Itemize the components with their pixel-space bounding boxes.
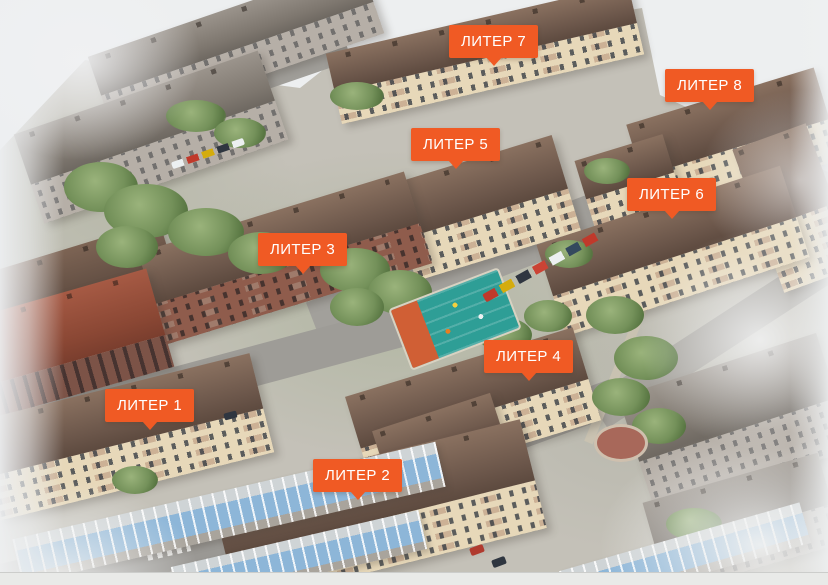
tree — [96, 226, 158, 268]
marker-liter-6[interactable]: ЛИТЕР 6 — [627, 178, 716, 211]
round-plaza — [594, 424, 648, 462]
marker-liter-8[interactable]: ЛИТЕР 8 — [665, 69, 754, 102]
marker-liter-1[interactable]: ЛИТЕР 1 — [105, 389, 194, 422]
marker-liter-4[interactable]: ЛИТЕР 4 — [484, 340, 573, 373]
tree — [112, 466, 158, 494]
tree — [584, 158, 630, 184]
marker-liter-3[interactable]: ЛИТЕР 3 — [258, 233, 347, 266]
tree — [330, 82, 384, 110]
marker-liter-5[interactable]: ЛИТЕР 5 — [411, 128, 500, 161]
tree — [592, 378, 650, 416]
tree — [586, 296, 644, 334]
tree — [524, 300, 572, 332]
tree — [614, 336, 678, 380]
marker-liter-2[interactable]: ЛИТЕР 2 — [313, 459, 402, 492]
marker-liter-7[interactable]: ЛИТЕР 7 — [449, 25, 538, 58]
frame-bottom-edge — [0, 572, 828, 585]
tree — [330, 288, 384, 326]
masterplan-render: ЛИТЕР 1 ЛИТЕР 2 ЛИТЕР 3 ЛИТЕР 4 ЛИТЕР 5 … — [0, 0, 828, 585]
